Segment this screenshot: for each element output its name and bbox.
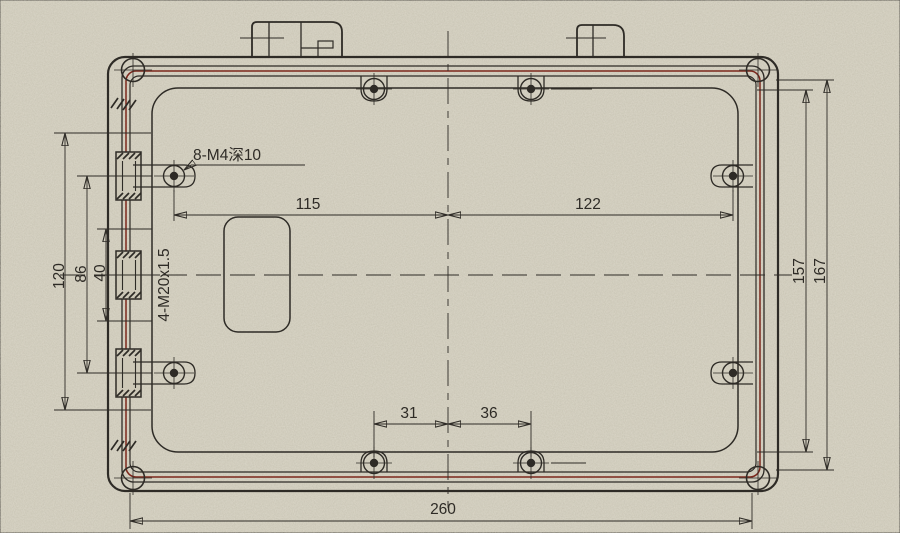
dim-label-40: 40 (92, 264, 109, 282)
dim-label-260: 260 (430, 501, 456, 518)
dim-label-120: 120 (51, 263, 68, 289)
dim-label-86: 86 (73, 265, 90, 282)
drawing-canvas: 115 122 31 36 260 120 86 40 (0, 0, 900, 533)
note-screws: 8-M4深10 (193, 146, 261, 164)
technical-drawing: 115 122 31 36 260 120 86 40 (0, 0, 900, 533)
dim-label-167: 167 (812, 258, 829, 284)
dim-label-115: 115 (296, 196, 321, 213)
dim-label-157: 157 (791, 258, 808, 284)
dim-label-31: 31 (400, 405, 417, 422)
dim-label-36: 36 (480, 405, 497, 422)
note-glands: 4-M20x1.5 (156, 248, 173, 321)
dim-label-122: 122 (575, 196, 601, 213)
